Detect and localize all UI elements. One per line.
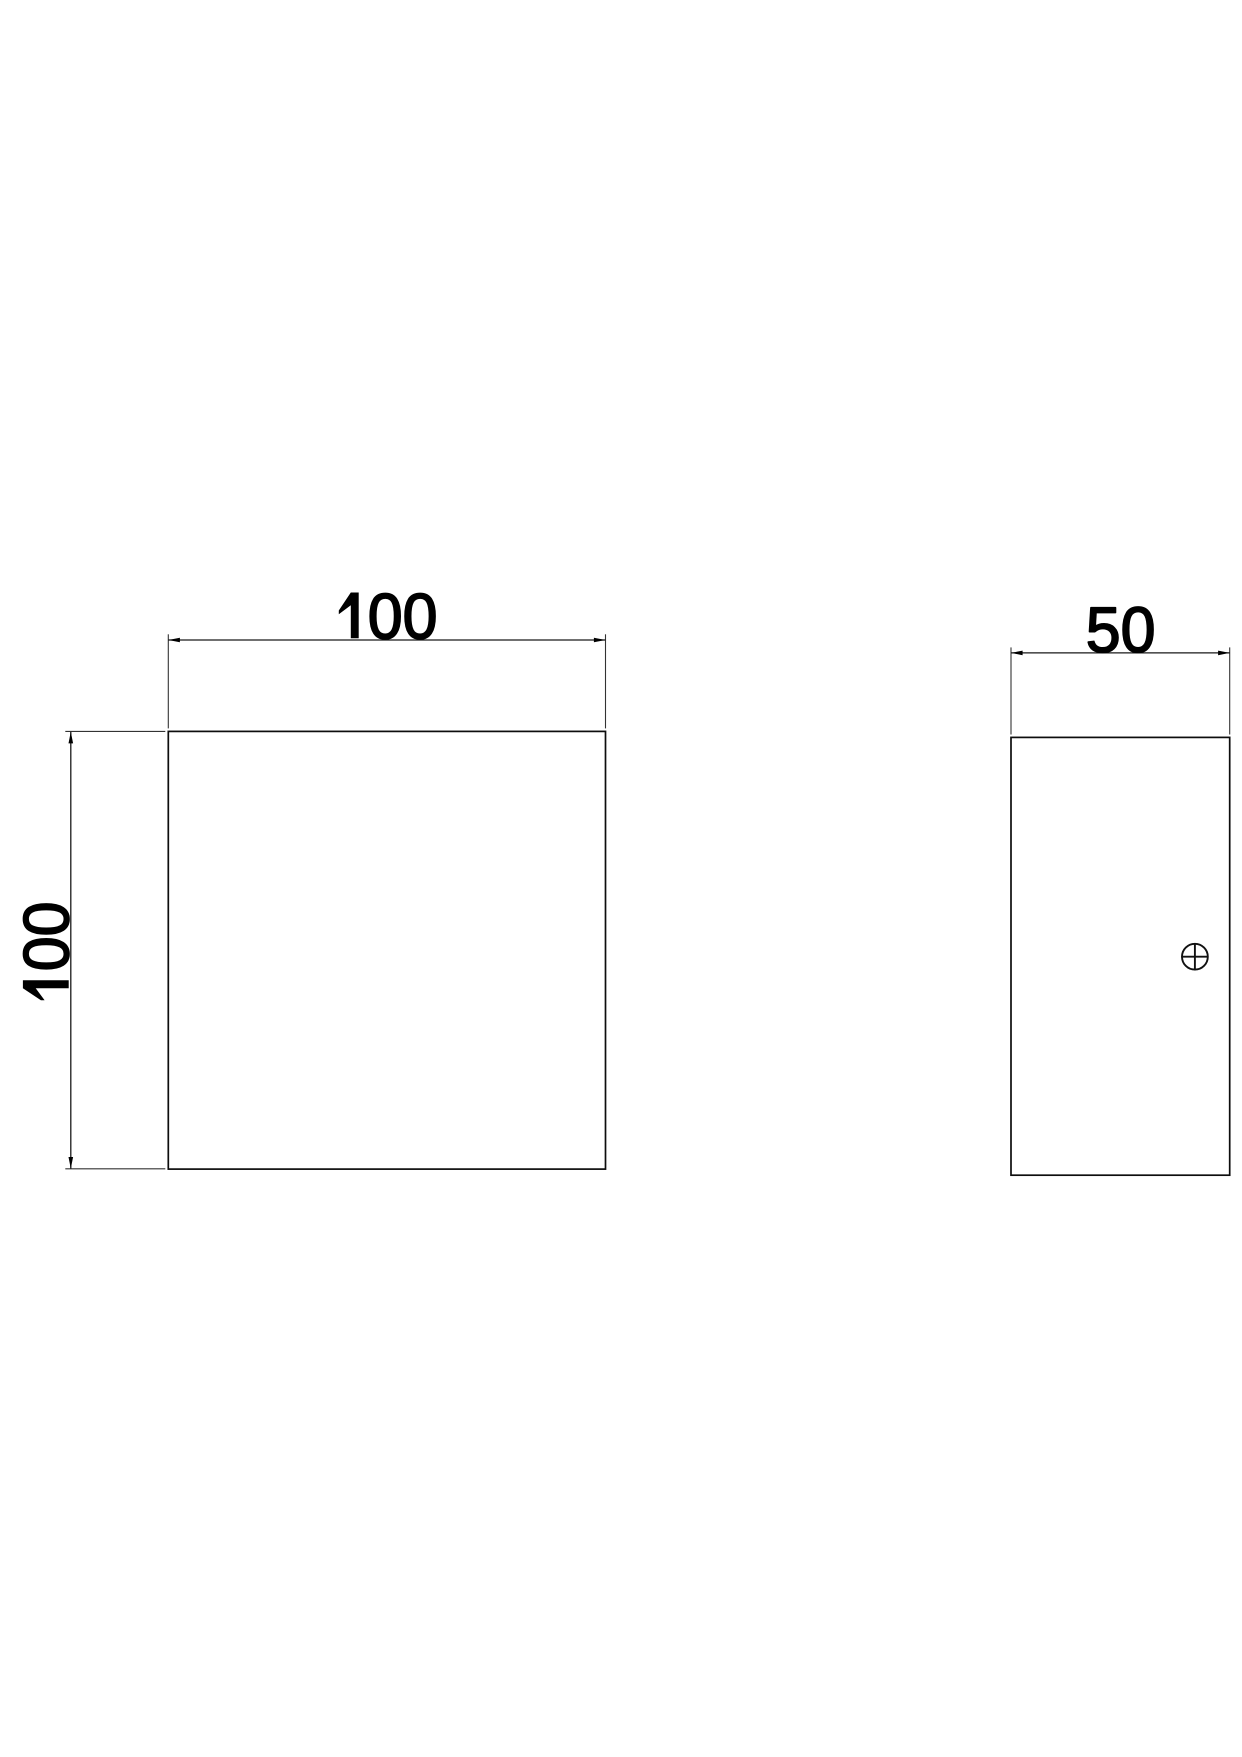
svg-text:50: 50 [1086,595,1156,666]
svg-text:00: 00 [368,582,438,653]
svg-text:00: 00 [12,902,83,972]
